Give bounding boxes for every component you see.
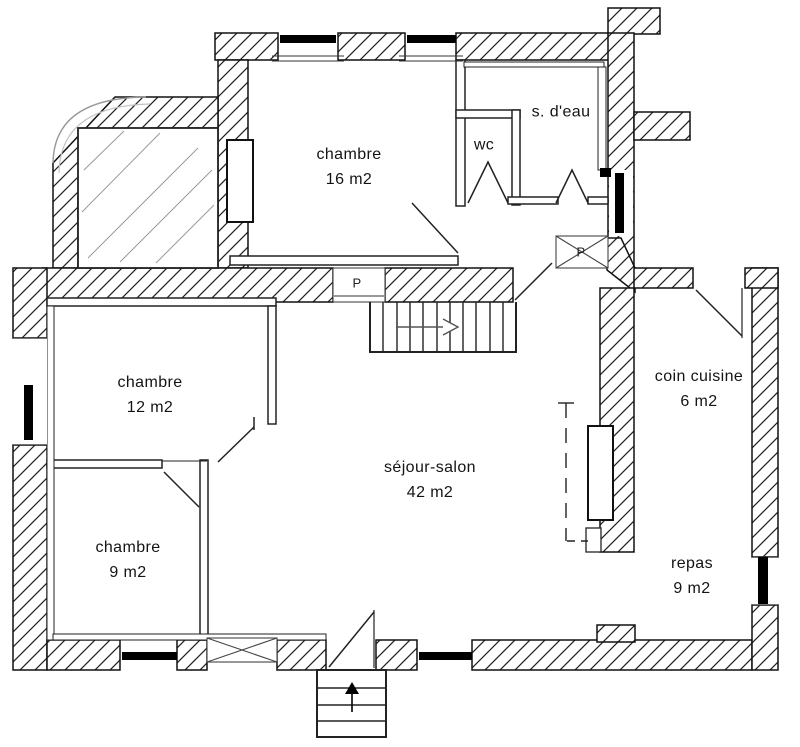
room-area: 16 m2: [316, 168, 381, 193]
room-area: 9 m2: [671, 577, 713, 602]
entrance-steps: [317, 670, 386, 737]
room-name: chambre: [95, 539, 160, 556]
room-label-repas: repas 9 m2: [671, 552, 713, 602]
room-area: 9 m2: [95, 561, 160, 586]
room-label-salle-deau: s. d'eau: [532, 101, 591, 126]
room-area: 6 m2: [655, 390, 743, 415]
floor-plan: chambre 16 m2 s. d'eau wc chambre 12 m2 …: [0, 0, 800, 747]
room-label-cuisine: coin cuisine 6 m2: [655, 365, 743, 415]
closet-label-p1: P: [353, 276, 362, 291]
closet-label-p2: P: [577, 245, 586, 260]
room-name: wc: [474, 137, 494, 154]
room-name: séjour-salon: [384, 459, 476, 476]
room-label-chambre-16: chambre 16 m2: [316, 143, 381, 193]
room-name: chambre: [316, 146, 381, 163]
room-name: chambre: [117, 374, 182, 391]
room-label-wc: wc: [474, 134, 494, 159]
room-label-chambre-12: chambre 12 m2: [117, 371, 182, 421]
veranda-window: [227, 140, 253, 222]
room-label-chambre-9: chambre 9 m2: [95, 536, 160, 586]
room-label-sejour: séjour-salon 42 m2: [384, 456, 476, 506]
room-area: 42 m2: [384, 481, 476, 506]
room-name: s. d'eau: [532, 104, 591, 121]
stair-direction-arrow: [396, 319, 458, 335]
room-area: 12 m2: [117, 396, 182, 421]
staircase: [370, 302, 516, 352]
doors: [164, 162, 742, 668]
room-name: repas: [671, 555, 713, 572]
room-name: coin cuisine: [655, 368, 743, 385]
dashed-indicator: [558, 403, 588, 541]
